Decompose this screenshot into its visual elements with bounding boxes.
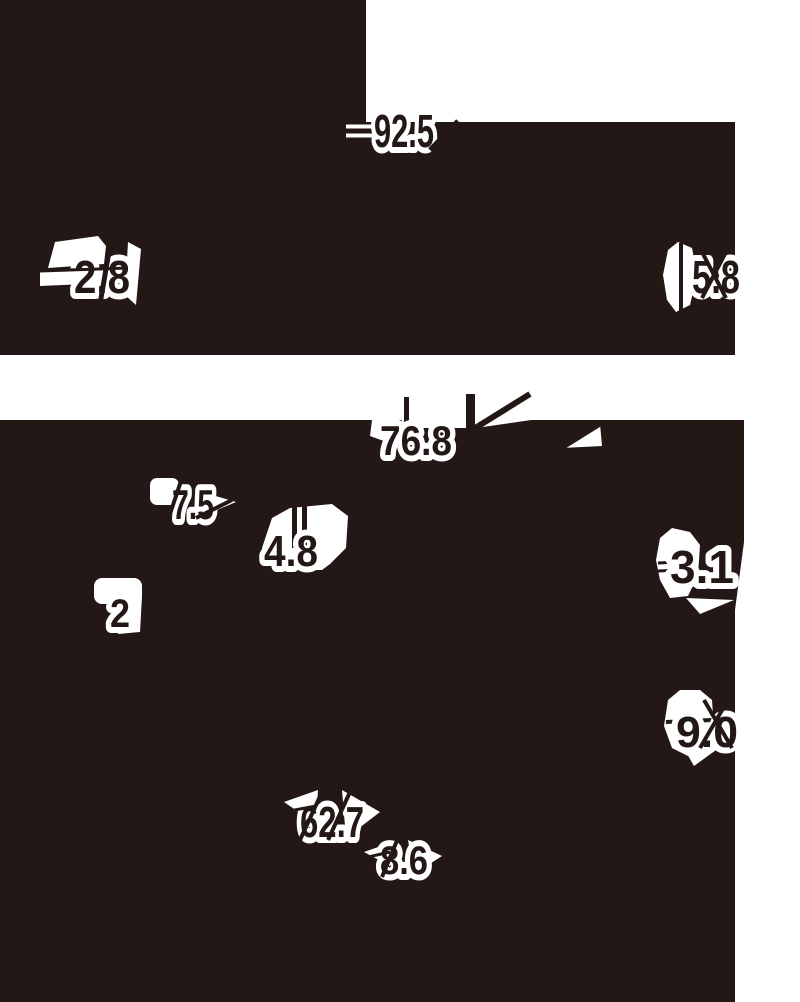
value-label-4-8: 4.8 (264, 527, 318, 576)
value-label-76-8: 76.8 (380, 417, 452, 464)
dark-bar2-76-8 (466, 394, 475, 428)
value-label-92-5: 92.5 (374, 105, 434, 157)
chart-figure: 92.5 2.8 5.8 76.8 7.5 (0, 0, 800, 1002)
value-label-3-1: 3.1 (670, 541, 734, 593)
top-chart-fill-left (0, 0, 366, 355)
bottom-chart-dark-region (0, 420, 744, 1002)
label-group-5-8: 5.8 (663, 242, 740, 312)
bottom-chart-fill (0, 420, 744, 1002)
label-group-9-0: 9.0 (664, 690, 738, 766)
figure-stage: 92.5 2.8 5.8 76.8 7.5 (0, 0, 800, 1002)
value-label-2: 2 (110, 592, 130, 636)
